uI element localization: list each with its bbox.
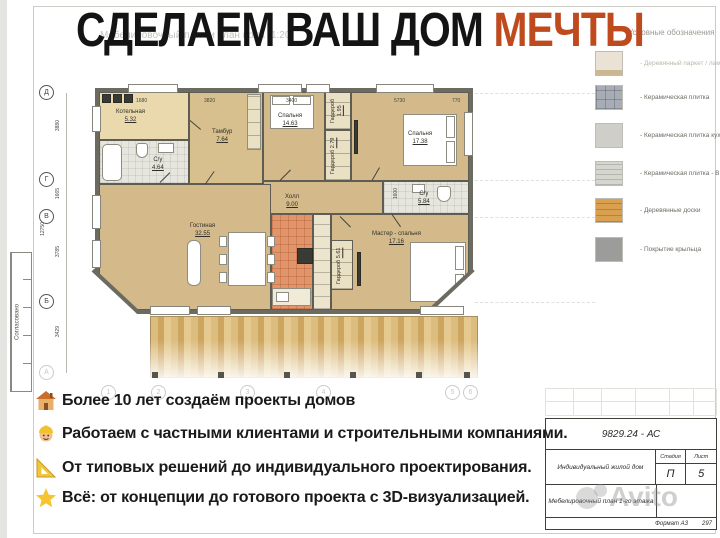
- ext-line: [475, 302, 595, 303]
- room-label-bedroom-1: Спальня14.63: [278, 112, 302, 128]
- dining-table: [228, 232, 266, 286]
- room-label-bath-2: С/у5.84: [418, 190, 430, 206]
- chair: [267, 272, 275, 283]
- star-icon: [35, 487, 57, 509]
- stove: [297, 248, 313, 264]
- axis-col-5: 5: [445, 385, 460, 400]
- window: [258, 84, 302, 93]
- room-hall: [263, 181, 383, 214]
- format-label: Формат А3: [655, 521, 688, 527]
- deck-post: [464, 372, 470, 378]
- window: [128, 84, 178, 93]
- dim-top-3: 3400: [286, 98, 297, 104]
- axis-row-g: Г: [39, 172, 54, 187]
- pillow: [455, 246, 464, 270]
- room-label-master: Мастер - спальня17.16: [372, 230, 421, 246]
- stamp-grid: [545, 388, 717, 416]
- legend-label-ceramic: - Керамическая плитка: [640, 94, 709, 101]
- ext-line: [475, 93, 595, 94]
- kitchen-sink: [276, 292, 289, 302]
- poster: Мебелировочный план и план пола (1:20) С…: [0, 0, 720, 538]
- dim-top-4: 5730: [394, 98, 405, 104]
- worker-icon: [35, 423, 57, 445]
- room-label-vestibule: Тамбур7.64: [212, 128, 232, 144]
- legend-swatch-ceramic-kitchen: [595, 123, 623, 148]
- window: [92, 195, 101, 229]
- dim-left-3: 3785: [55, 246, 61, 257]
- room-label-bath-1: С/у4.64: [152, 156, 164, 172]
- room-label-boiler: Котельная5.32: [116, 108, 145, 124]
- dim-bath: 1600: [393, 188, 399, 199]
- window: [464, 112, 473, 156]
- approval-label: Согласовано: [11, 253, 23, 391]
- chair: [219, 236, 227, 247]
- title-block: 9829.24 - АС Индивидуальный жилой дом Ст…: [545, 418, 717, 530]
- dim-left-total: 12750: [40, 222, 46, 236]
- chair: [267, 236, 275, 247]
- chair: [267, 254, 275, 265]
- axis-row-d: Д: [39, 85, 54, 100]
- headline-accent: МЕЧТЫ: [494, 4, 644, 57]
- dimension-line: [66, 93, 67, 373]
- dim-left-2: 1665: [55, 188, 61, 199]
- boiler-unit: [124, 94, 133, 103]
- deck-fade: [148, 340, 480, 380]
- ruler-icon: [35, 457, 57, 479]
- sheet-cell: Лист 5: [686, 450, 716, 484]
- sink: [158, 143, 174, 153]
- avito-watermark: Avito: [576, 484, 678, 509]
- window: [306, 84, 330, 93]
- deck-post: [350, 372, 356, 378]
- stage-label: Стадия: [656, 450, 686, 464]
- sheet-label: Лист: [686, 450, 716, 464]
- legend-swatch-ceramic: [595, 85, 623, 110]
- dim-top-2: 3820: [204, 98, 215, 104]
- sideboard: [187, 240, 201, 286]
- stage-cell: Стадия П: [656, 450, 687, 484]
- room-label-living: Гостиная32.55: [190, 222, 215, 238]
- headline: СДЕЛАЕМ ВАШ ДОМ МЕЧТЫ: [54, 6, 666, 56]
- doc-number: 9829.24 - АС: [546, 419, 716, 450]
- window: [92, 106, 101, 132]
- tv: [354, 120, 358, 154]
- washer: [102, 94, 111, 103]
- dim-left-4: 3429: [55, 326, 61, 337]
- window: [197, 306, 231, 315]
- vestibule-closet: [247, 94, 261, 150]
- pillow: [446, 116, 455, 138]
- washer: [113, 94, 122, 103]
- chair: [219, 254, 227, 265]
- axis-row-b: Б: [39, 294, 54, 309]
- tv: [357, 252, 361, 286]
- format-size: 297: [702, 521, 712, 527]
- toilet: [437, 186, 451, 202]
- dim-top-1: 1680: [136, 98, 147, 104]
- headline-main: СДЕЛАЕМ ВАШ ДОМ: [76, 4, 494, 57]
- house-icon: [35, 390, 57, 412]
- sheet-edge: [0, 0, 7, 538]
- pillow: [446, 141, 455, 163]
- watermark-text: Avito: [609, 484, 678, 509]
- legend-swatch-porch: [595, 237, 623, 262]
- axis-col-6: 6: [463, 385, 478, 400]
- room-label-wardrobe-2: Гардероб 2.79: [330, 136, 337, 176]
- approval-strip: Согласовано: [10, 252, 32, 392]
- window: [376, 84, 434, 93]
- deck-post: [284, 372, 290, 378]
- deck-post: [218, 372, 224, 378]
- room-wardrobe-2: [325, 130, 351, 181]
- feature-3: От типовых решений до индивидуального пр…: [62, 459, 532, 477]
- approval-rows: [23, 253, 31, 391]
- legend-label-ceramic-bath: - Керамическая плитка - В с/у: [640, 170, 720, 177]
- axis-row-a: А: [39, 365, 54, 380]
- bathtub: [102, 144, 122, 181]
- window: [420, 306, 464, 315]
- legend-swatch-boards: [595, 198, 623, 223]
- project-name: Индивидуальный жилой дом: [546, 450, 656, 484]
- feature-1: Более 10 лет создаём проекты домов: [62, 392, 355, 410]
- legend-label-ceramic-kitchen: - Керамическая плитка кухонная: [640, 132, 720, 139]
- room-label-wardrobe-3: Гардероб 5.61: [336, 246, 343, 286]
- room-label-wardrobe-1: Гардероб 1.95: [330, 96, 344, 126]
- dim-left-1: 3880: [55, 120, 61, 131]
- window: [92, 240, 101, 268]
- watermark-circle-icon: [594, 484, 607, 497]
- legend-label-porch: - Покрытие крыльца: [640, 246, 701, 253]
- window: [150, 306, 190, 315]
- deck-post: [152, 372, 158, 378]
- dim-top-5: 770: [452, 98, 460, 104]
- ext-line: [475, 180, 595, 181]
- room-label-bedroom-2: Спальня17.38: [408, 130, 432, 146]
- room-label-hall: Холл9.00: [285, 193, 299, 209]
- feature-2: Работаем с частными клиентами и строител…: [62, 425, 568, 443]
- sheet-value: 5: [686, 464, 716, 484]
- legend-label-boards: - Деревянные доски: [640, 207, 701, 214]
- ext-line: [475, 217, 595, 218]
- feature-4: Всё: от концепции до готового проекта с …: [62, 489, 529, 507]
- toilet: [136, 143, 148, 158]
- legend-label-parquet: - Деревянный паркет / ламинат: [640, 60, 720, 67]
- legend-swatch-ceramic-bath: [595, 161, 623, 186]
- deck-post: [416, 372, 422, 378]
- kitchen-counter: [313, 214, 331, 310]
- chair: [219, 272, 227, 283]
